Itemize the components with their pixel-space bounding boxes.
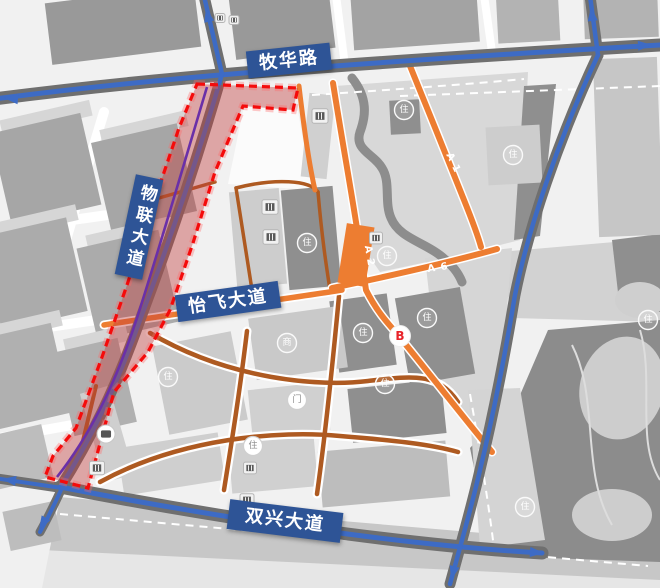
building-icon: [215, 14, 225, 23]
gate-marker: 门: [288, 391, 307, 410]
residential-marker: 住: [504, 146, 523, 165]
svg-text:住: 住: [399, 103, 408, 115]
residential-marker: 住: [516, 498, 535, 517]
planning-map-canvas: 住住住住住住住商住门住住住 A 1A 2A 6B: [0, 0, 660, 588]
residential-marker: 住: [376, 375, 395, 394]
svg-text:住: 住: [382, 249, 391, 261]
residential-marker: 住: [354, 324, 373, 343]
building-icon: [229, 16, 239, 25]
map[interactable]: 住住住住住住住商住门住住住 A 1A 2A 6B 牧华路物联大道怡飞大道双兴大道: [0, 0, 660, 588]
residential-marker: 住: [378, 247, 397, 266]
metro-icon: [90, 461, 105, 475]
svg-text:商: 商: [282, 336, 291, 348]
bus-icon: [97, 425, 115, 443]
svg-text:住: 住: [643, 313, 652, 325]
svg-text:住: 住: [163, 370, 172, 382]
facility-icon: [263, 230, 279, 244]
facility-icon: [370, 232, 383, 244]
facility-icon: [262, 200, 278, 214]
svg-text:门: 门: [292, 393, 301, 405]
facility-icon: [244, 462, 257, 474]
commercial-marker: 商: [278, 334, 297, 353]
svg-text:住: 住: [302, 236, 311, 248]
residential-marker: 住: [395, 101, 414, 120]
svg-text:住: 住: [248, 439, 257, 451]
svg-text:住: 住: [520, 500, 529, 512]
transit-icon: [312, 109, 328, 123]
svg-text:B: B: [395, 329, 404, 343]
svg-text:住: 住: [358, 326, 367, 338]
svg-text:住: 住: [508, 148, 517, 160]
point-b-marker: B: [390, 326, 411, 347]
residential-marker: 住: [418, 309, 437, 328]
residential-marker: 住: [639, 311, 658, 330]
residential-marker: 住: [159, 368, 178, 387]
svg-text:住: 住: [422, 311, 431, 323]
residential-marker: 住: [244, 437, 263, 456]
residential-marker: 住: [298, 234, 317, 253]
svg-text:住: 住: [380, 377, 389, 389]
